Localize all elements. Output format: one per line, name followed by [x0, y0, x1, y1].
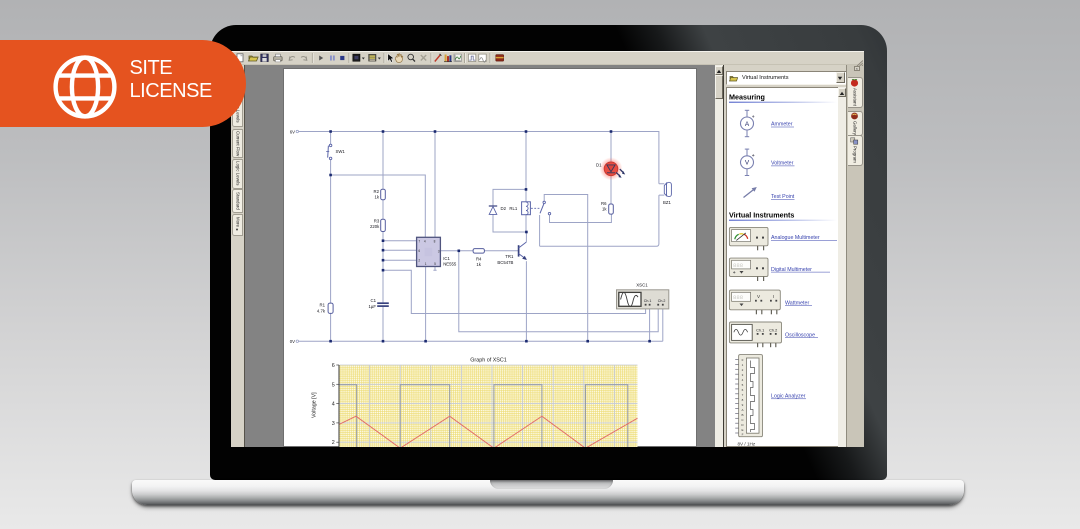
- svg-text:B: B: [741, 413, 743, 417]
- svg-text:SW1: SW1: [336, 149, 346, 154]
- svg-text:Ch.1: Ch.1: [644, 299, 652, 303]
- svg-text:Measuring: Measuring: [729, 93, 765, 102]
- svg-text:F: F: [742, 433, 744, 437]
- svg-text:R3: R3: [374, 218, 380, 223]
- svg-text:IC1: IC1: [443, 256, 450, 261]
- svg-text:R2: R2: [374, 189, 380, 194]
- svg-text:NE555: NE555: [443, 261, 457, 266]
- svg-text:8: 8: [434, 239, 436, 243]
- svg-text:8V / 1Hz: 8V / 1Hz: [738, 442, 756, 447]
- svg-text:Virtual Instruments: Virtual Instruments: [729, 211, 794, 220]
- svg-text:888: 888: [733, 262, 743, 269]
- svg-text:2: 2: [418, 258, 420, 262]
- svg-text:4: 4: [424, 239, 426, 243]
- svg-text:1µF: 1µF: [369, 304, 377, 309]
- svg-text:A: A: [741, 408, 743, 412]
- svg-text:888: 888: [733, 294, 743, 301]
- svg-text:R1: R1: [320, 302, 326, 307]
- svg-text:I: I: [773, 294, 774, 299]
- svg-text:0V: 0V: [290, 339, 295, 344]
- svg-text:220k: 220k: [370, 224, 380, 229]
- svg-text:6V: 6V: [290, 129, 295, 134]
- svg-text:D2: D2: [501, 206, 507, 211]
- svg-text:5: 5: [332, 382, 335, 388]
- svg-text:1k: 1k: [476, 262, 481, 267]
- svg-text:1k: 1k: [602, 206, 607, 211]
- svg-text:3: 3: [438, 249, 440, 253]
- svg-text:Voltage [V]: Voltage [V]: [312, 392, 318, 418]
- svg-text:D1: D1: [596, 162, 602, 167]
- svg-text:R6: R6: [601, 201, 607, 206]
- svg-text:Ch.2: Ch.2: [769, 328, 777, 333]
- svg-text:Ch.1: Ch.1: [756, 328, 764, 333]
- svg-text:4: 4: [332, 401, 335, 407]
- svg-text:A: A: [745, 121, 750, 128]
- svg-text:C1: C1: [371, 298, 377, 303]
- svg-text:7: 7: [418, 239, 420, 243]
- svg-text:Graph of XSC1: Graph of XSC1: [470, 357, 507, 363]
- svg-text:BC547B: BC547B: [497, 260, 513, 265]
- svg-text:3: 3: [332, 421, 335, 427]
- svg-text:1k: 1k: [374, 194, 379, 199]
- svg-text:1: 1: [425, 262, 427, 266]
- svg-text:E: E: [741, 428, 743, 432]
- svg-text:4.7k: 4.7k: [317, 308, 326, 313]
- svg-text:RL1: RL1: [509, 206, 517, 211]
- svg-text:XSC1: XSC1: [636, 282, 648, 287]
- svg-text:BZ1: BZ1: [663, 200, 671, 205]
- svg-text:5: 5: [434, 262, 436, 266]
- svg-text:2: 2: [332, 440, 335, 446]
- svg-text:6: 6: [332, 363, 335, 369]
- svg-text:TR1: TR1: [505, 254, 514, 259]
- svg-text:6: 6: [418, 249, 420, 253]
- svg-text:V: V: [745, 160, 750, 167]
- svg-text:R4: R4: [476, 256, 482, 261]
- svg-text:Ch.2: Ch.2: [658, 299, 666, 303]
